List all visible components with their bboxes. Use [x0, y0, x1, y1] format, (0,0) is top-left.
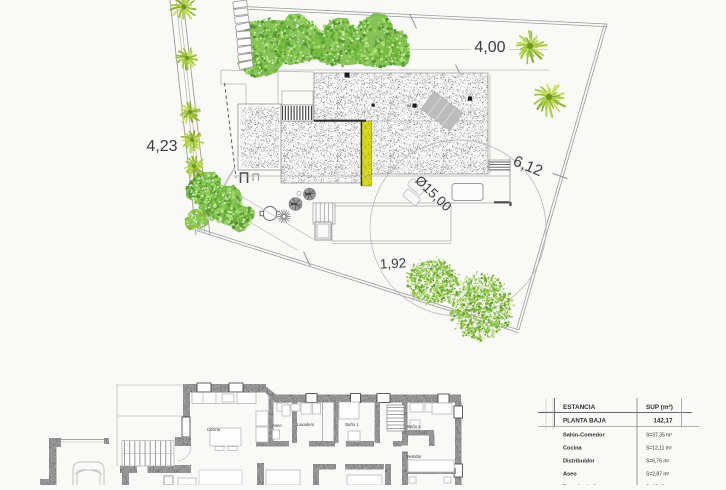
- svg-text:PLANTA BAJA: PLANTA BAJA: [563, 418, 606, 425]
- svg-text:142,17: 142,17: [654, 418, 673, 425]
- svg-text:Aseo: Aseo: [272, 423, 282, 428]
- svg-text:S=12,11 m²: S=12,11 m²: [646, 446, 672, 452]
- svg-text:Baño 1: Baño 1: [345, 422, 359, 427]
- svg-text:S=6,76 m²: S=6,76 m²: [646, 459, 670, 465]
- svg-text:S=2,87 m²: S=2,87 m²: [646, 472, 670, 478]
- svg-text:1,92: 1,92: [380, 255, 407, 271]
- svg-text:4,23: 4,23: [146, 138, 177, 155]
- svg-text:Baño 2: Baño 2: [407, 424, 421, 429]
- svg-text:Distribuidor: Distribuidor: [563, 459, 596, 465]
- svg-text:Cocina: Cocina: [563, 446, 583, 452]
- svg-text:ESTANCIA: ESTANCIA: [563, 404, 596, 411]
- svg-text:Lavadero: Lavadero: [297, 422, 315, 427]
- svg-text:Salón-Comedor: Salón-Comedor: [563, 433, 605, 439]
- svg-text:Aseo: Aseo: [563, 472, 577, 478]
- svg-text:S=37,35 m²: S=37,35 m²: [646, 433, 672, 439]
- svg-text:Vestidor: Vestidor: [406, 454, 422, 459]
- svg-text:Cocina: Cocina: [207, 427, 221, 432]
- svg-text:4,00: 4,00: [474, 39, 505, 56]
- svg-text:SUP (m²): SUP (m²): [646, 404, 673, 411]
